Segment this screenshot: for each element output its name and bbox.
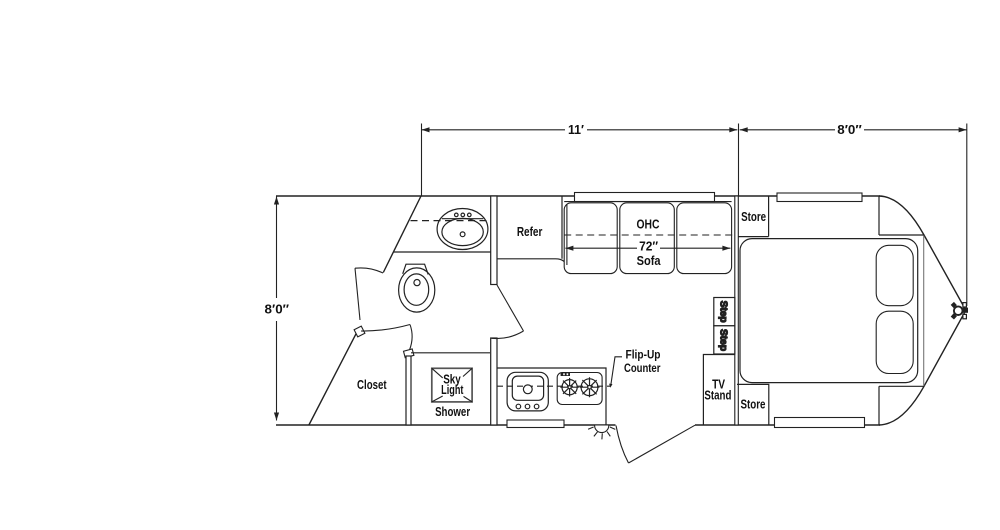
svg-text:Step: Step [718, 329, 729, 351]
svg-text:OHC: OHC [637, 217, 660, 231]
svg-text:Closet: Closet [357, 378, 387, 392]
svg-text:Step: Step [718, 301, 729, 323]
svg-text:Sofa: Sofa [637, 254, 662, 268]
svg-text:Flip-Up: Flip-Up [626, 348, 661, 362]
svg-text:8′0″: 8′0″ [837, 123, 862, 137]
svg-text:Refer: Refer [517, 225, 543, 239]
svg-text:Light: Light [441, 382, 464, 397]
svg-text:11′: 11′ [568, 123, 584, 137]
svg-text:Store: Store [741, 210, 766, 224]
svg-text:Counter: Counter [624, 361, 661, 375]
svg-text:8′0″: 8′0″ [265, 303, 290, 317]
svg-text:Store: Store [741, 397, 766, 411]
svg-text:Shower: Shower [435, 405, 470, 419]
svg-text:72″: 72″ [639, 239, 658, 253]
svg-text:Stand: Stand [704, 388, 731, 402]
